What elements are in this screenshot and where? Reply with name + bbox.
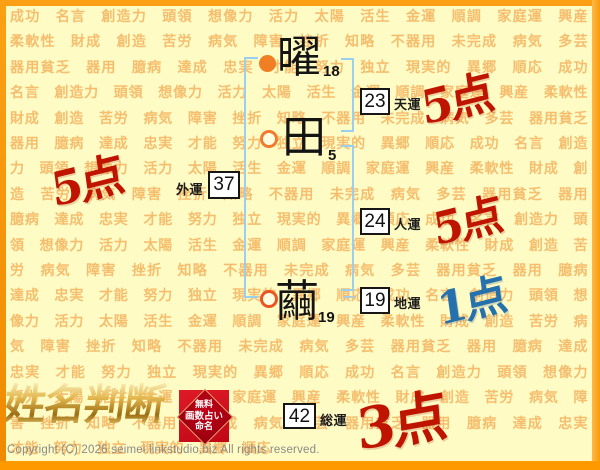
gaiun-bracket-top-hook [244,57,258,59]
badge-line-3: 命名 [195,422,213,433]
chiun-pointer-dash [343,296,355,298]
jinun-value-box: 24 [360,208,390,235]
badge-line-2: 画数占い [185,411,223,422]
gaiun-bracket-vertical [244,57,246,298]
frame-border-right [592,0,600,470]
name-character-2: 田 [282,116,326,160]
jinun-label: 人運 [394,214,421,233]
frame-border-top [0,0,600,6]
chiun-label: 地運 [394,293,421,312]
gaiun-label: 外運 [176,179,203,198]
tenun-value-box: 23 [360,88,390,115]
site-logo[interactable]: 姓名判断 [1,381,168,429]
tenun-bracket-top-hook [341,58,354,60]
frame-border-bottom [0,461,600,470]
souun-value-box: 42 [283,403,316,429]
badge-text: 無料 画数占い 命名 [179,390,229,442]
fortune-result-canvas: 成功 名言 創造力 頭領 想像力 活力 太陽 活生 金運 順調 家庭運 興産 柔… [0,0,600,470]
surname-marker-ring-circle-icon [260,130,278,148]
jinun-bracket-bottom-hook [341,289,354,291]
name-character-1: 曜 [277,36,321,80]
souun-score: 3点 [354,370,447,467]
chiun-value-box: 19 [360,287,390,314]
tenun-bracket-bottom-hook [341,130,354,132]
tenun-label: 天運 [394,94,421,113]
stroke-count-2: 5 [328,147,336,164]
surname-marker-filled-circle-icon [259,55,276,72]
stroke-count-3: 19 [318,309,335,326]
copyright-text: Copyright (C) 2026 seimei.linkstudio.biz… [7,444,320,456]
tenun-bracket-vertical [352,58,354,132]
name-character-3: 繭 [275,280,319,324]
gaiun-bracket-bottom-hook [244,296,258,298]
jinun-bracket-top-hook [341,145,354,147]
souun-label: 総運 [320,410,347,429]
gaiun-value-box: 37 [208,171,240,199]
badge-line-1: 無料 [195,400,213,411]
frame-border-left [0,0,6,470]
stroke-count-1: 18 [323,63,340,80]
jinun-bracket-vertical [352,145,354,291]
free-naming-badge[interactable]: 無料 画数占い 命名 [179,390,229,442]
